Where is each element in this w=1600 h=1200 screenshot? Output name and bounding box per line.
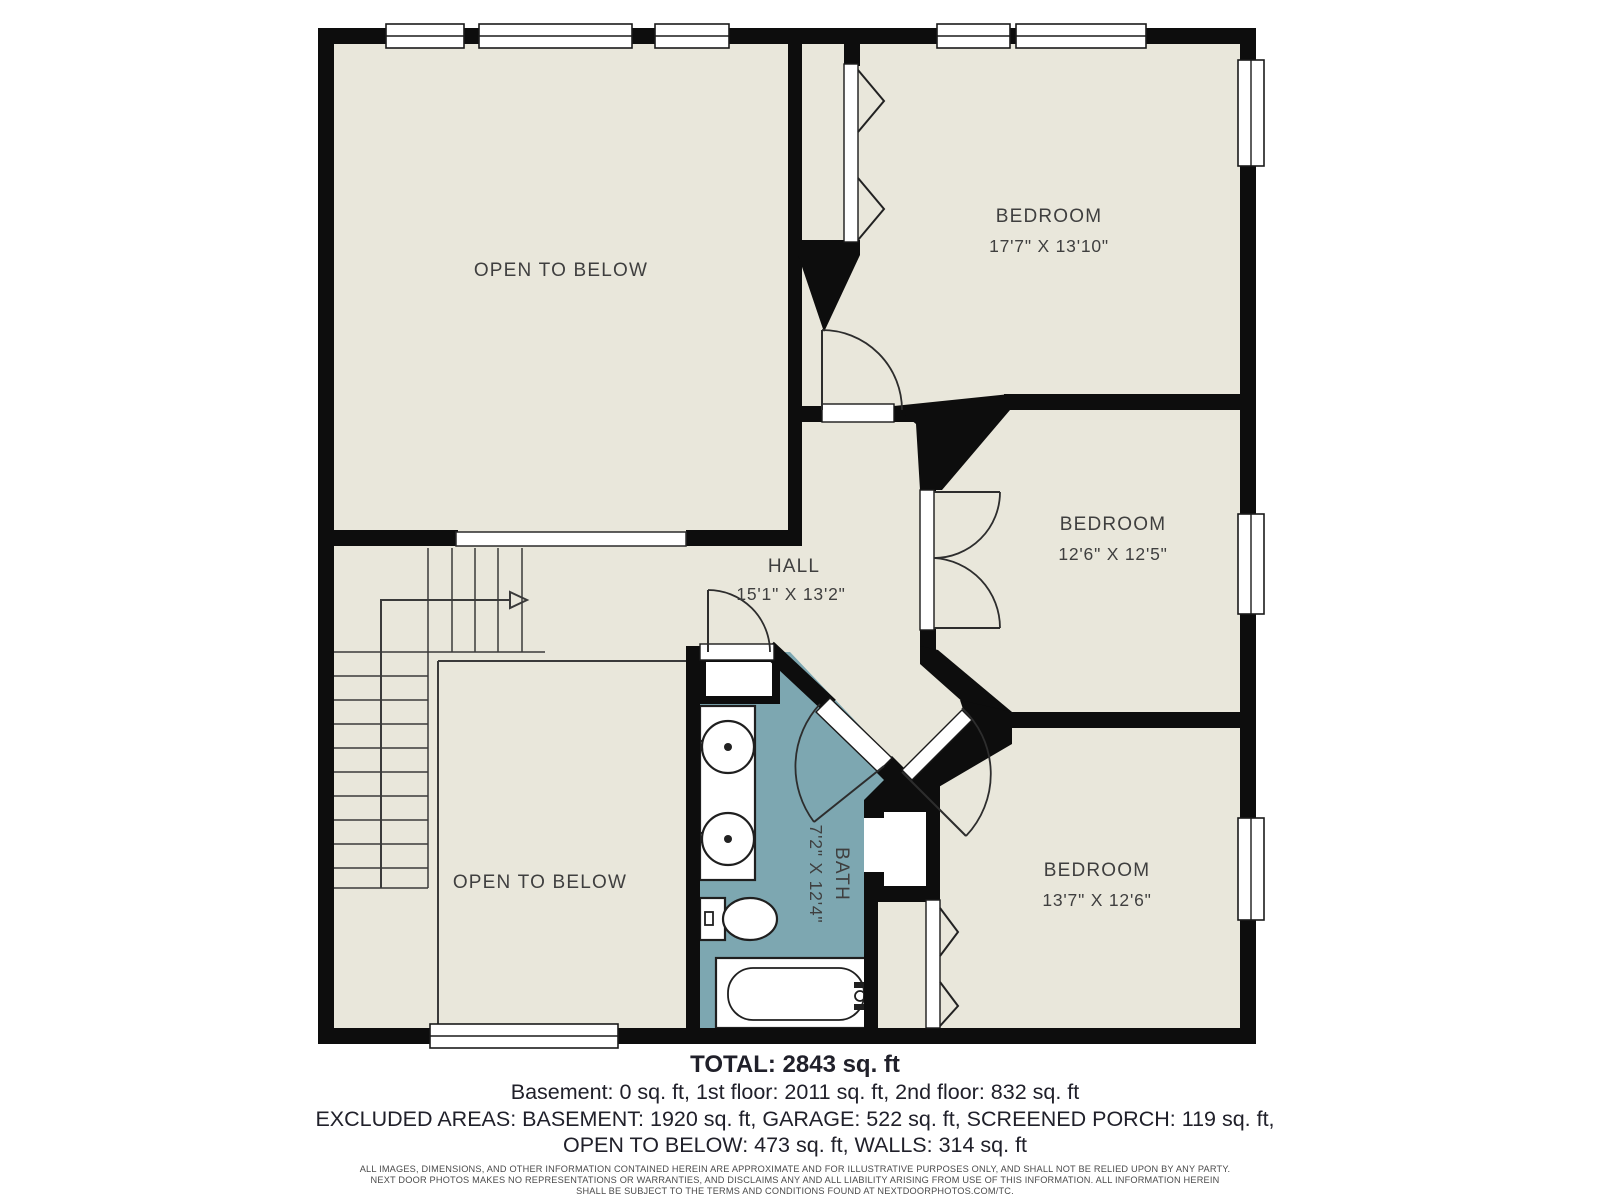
summary-block: TOTAL: 2843 sq. ft Basement: 0 sq. ft, 1… xyxy=(315,1051,1274,1157)
window xyxy=(479,24,632,48)
room-name: HALL xyxy=(768,556,820,577)
window xyxy=(1238,60,1264,166)
room-dimensions: 15'1" X 13'2" xyxy=(736,584,845,604)
room-name: BEDROOM xyxy=(996,206,1103,227)
room-dimensions: 13'7" X 12'6" xyxy=(1042,890,1151,910)
sink-drain xyxy=(724,835,732,843)
total-area: TOTAL: 2843 sq. ft xyxy=(690,1051,900,1078)
disclaimer-line1: ALL IMAGES, DIMENSIONS, AND OTHER INFORM… xyxy=(360,1164,1231,1174)
disclaimer-line3: SHALL BE SUBJECT TO THE TERMS AND CONDIT… xyxy=(576,1186,1014,1196)
window xyxy=(655,24,729,48)
toilet xyxy=(700,898,777,940)
disclaimer-block: ALL IMAGES, DIMENSIONS, AND OTHER INFORM… xyxy=(360,1164,1231,1196)
hall-cabinet xyxy=(698,654,780,704)
room-dimensions: 17'7" X 13'10" xyxy=(989,236,1109,256)
sink-drain xyxy=(724,743,732,751)
room-name: BEDROOM xyxy=(1044,860,1151,881)
room-name: BATH xyxy=(831,847,852,901)
disclaimer-line2: NEXT DOOR PHOTOS MAKES NO REPRESENTATION… xyxy=(371,1175,1220,1185)
window xyxy=(430,1024,618,1048)
window xyxy=(937,24,1010,48)
vanity xyxy=(700,706,755,880)
floor-areas: Basement: 0 sq. ft, 1st floor: 2011 sq. … xyxy=(511,1080,1079,1104)
room-name: OPEN TO BELOW xyxy=(453,872,627,893)
excluded-areas-line2: OPEN TO BELOW: 473 sq. ft, WALLS: 314 sq… xyxy=(563,1133,1027,1157)
room-name: OPEN TO BELOW xyxy=(474,260,648,281)
stair-header-railing xyxy=(456,532,686,546)
room-dimensions: 7'2" X 12'4" xyxy=(806,825,826,924)
bathtub xyxy=(716,958,876,1028)
room-dimensions: 12'6" X 12'5" xyxy=(1058,544,1167,564)
window xyxy=(1238,818,1264,920)
room-name: BEDROOM xyxy=(1060,514,1167,535)
window xyxy=(1016,24,1146,48)
excluded-areas-line1: EXCLUDED AREAS: BASEMENT: 1920 sq. ft, G… xyxy=(315,1107,1274,1131)
window xyxy=(1238,514,1264,614)
floor-plan: OPEN TO BELOW BEDROOM 17'7" X 13'10" HAL… xyxy=(0,0,1600,1200)
room-open-to-below-lower: OPEN TO BELOW xyxy=(453,872,627,893)
room-open-to-below-upper: OPEN TO BELOW xyxy=(474,260,648,281)
window xyxy=(386,24,464,48)
